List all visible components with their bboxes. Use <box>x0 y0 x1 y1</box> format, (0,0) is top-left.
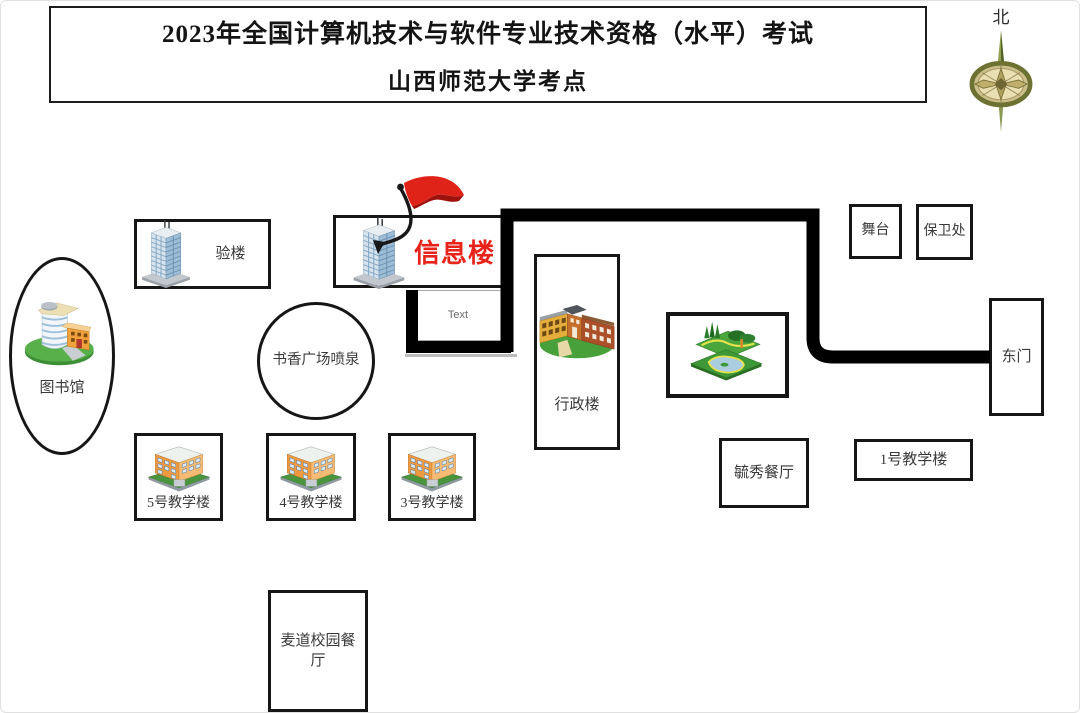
compass: 北 <box>959 3 1043 133</box>
maidao-dining-label: 麦道校园餐厅 <box>279 631 357 672</box>
teaching-building-1-node: 1号教学楼 <box>854 439 973 481</box>
admin-building-label: 行政楼 <box>554 395 599 415</box>
title-box: 2023年全国计算机技术与软件专业技术资格（水平）考试 山西师范大学考点 <box>49 6 927 103</box>
fountain-label: 书香广场喷泉 <box>273 351 360 371</box>
admin-building-node: 行政楼 <box>534 254 620 450</box>
library-label: 图书馆 <box>39 378 84 398</box>
classroom-building-icon <box>398 440 466 494</box>
info-building-node: 信息楼 <box>333 215 504 288</box>
teaching-building-1-label: 1号教学楼 <box>880 450 948 470</box>
teaching-building-4-node: 4号教学楼 <box>266 433 356 521</box>
fountain-node: 书香广场喷泉 <box>257 302 375 420</box>
yuxiu-dining-node: 毓秀餐厅 <box>719 438 809 508</box>
park-node <box>666 312 789 398</box>
east-gate-node: 东门 <box>989 298 1044 416</box>
exam-title: 2023年全国计算机技术与软件专业技术资格（水平）考试 <box>162 14 814 50</box>
teaching-building-3-label: 3号教学楼 <box>401 495 464 514</box>
school-building-icon <box>535 291 619 369</box>
teaching-building-5-label: 5号教学楼 <box>147 495 210 514</box>
classroom-building-icon <box>277 440 345 494</box>
text-note-box: Text <box>414 290 502 341</box>
teaching-building-3-node: 3号教学楼 <box>388 433 476 521</box>
teaching-building-4-label: 4号教学楼 <box>280 495 343 514</box>
security-office-label: 保卫处 <box>924 223 966 242</box>
library-node: 图书馆 <box>9 257 115 455</box>
maidao-dining-node: 麦道校园餐厅 <box>268 590 368 712</box>
stage-label: 舞台 <box>862 222 890 241</box>
north-label: 北 <box>993 3 1010 28</box>
skyscraper-icon <box>350 217 408 289</box>
skyscraper-icon <box>139 220 193 288</box>
park-garden-icon <box>680 318 776 392</box>
east-gate-label: 东门 <box>1001 347 1031 367</box>
lab-building-node: 验楼 <box>134 219 271 289</box>
teaching-building-5-node: 5号教学楼 <box>134 433 223 521</box>
lab-building-label: 验楼 <box>193 244 268 264</box>
library-building-icon <box>20 292 104 368</box>
campus-map: 2023年全国计算机技术与软件专业技术资格（水平）考试 山西师范大学考点 北 图… <box>0 0 1080 713</box>
compass-rose-icon <box>966 29 1036 133</box>
text-note-label: Text <box>448 308 468 323</box>
yuxiu-dining-label: 毓秀餐厅 <box>734 463 794 483</box>
info-building-label: 信息楼 <box>408 233 501 270</box>
stage-node: 舞台 <box>849 204 902 259</box>
classroom-building-icon <box>145 440 213 494</box>
security-office-node: 保卫处 <box>916 204 973 260</box>
exam-site-subtitle: 山西师范大学考点 <box>388 62 588 96</box>
